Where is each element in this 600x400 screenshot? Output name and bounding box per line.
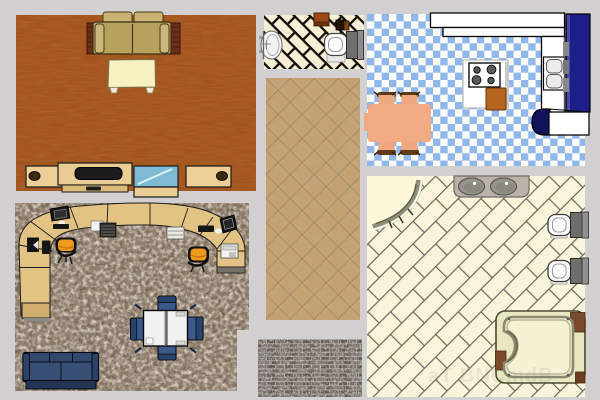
svg-text:aT BNCmdB: aT BNCmdB	[428, 365, 554, 387]
